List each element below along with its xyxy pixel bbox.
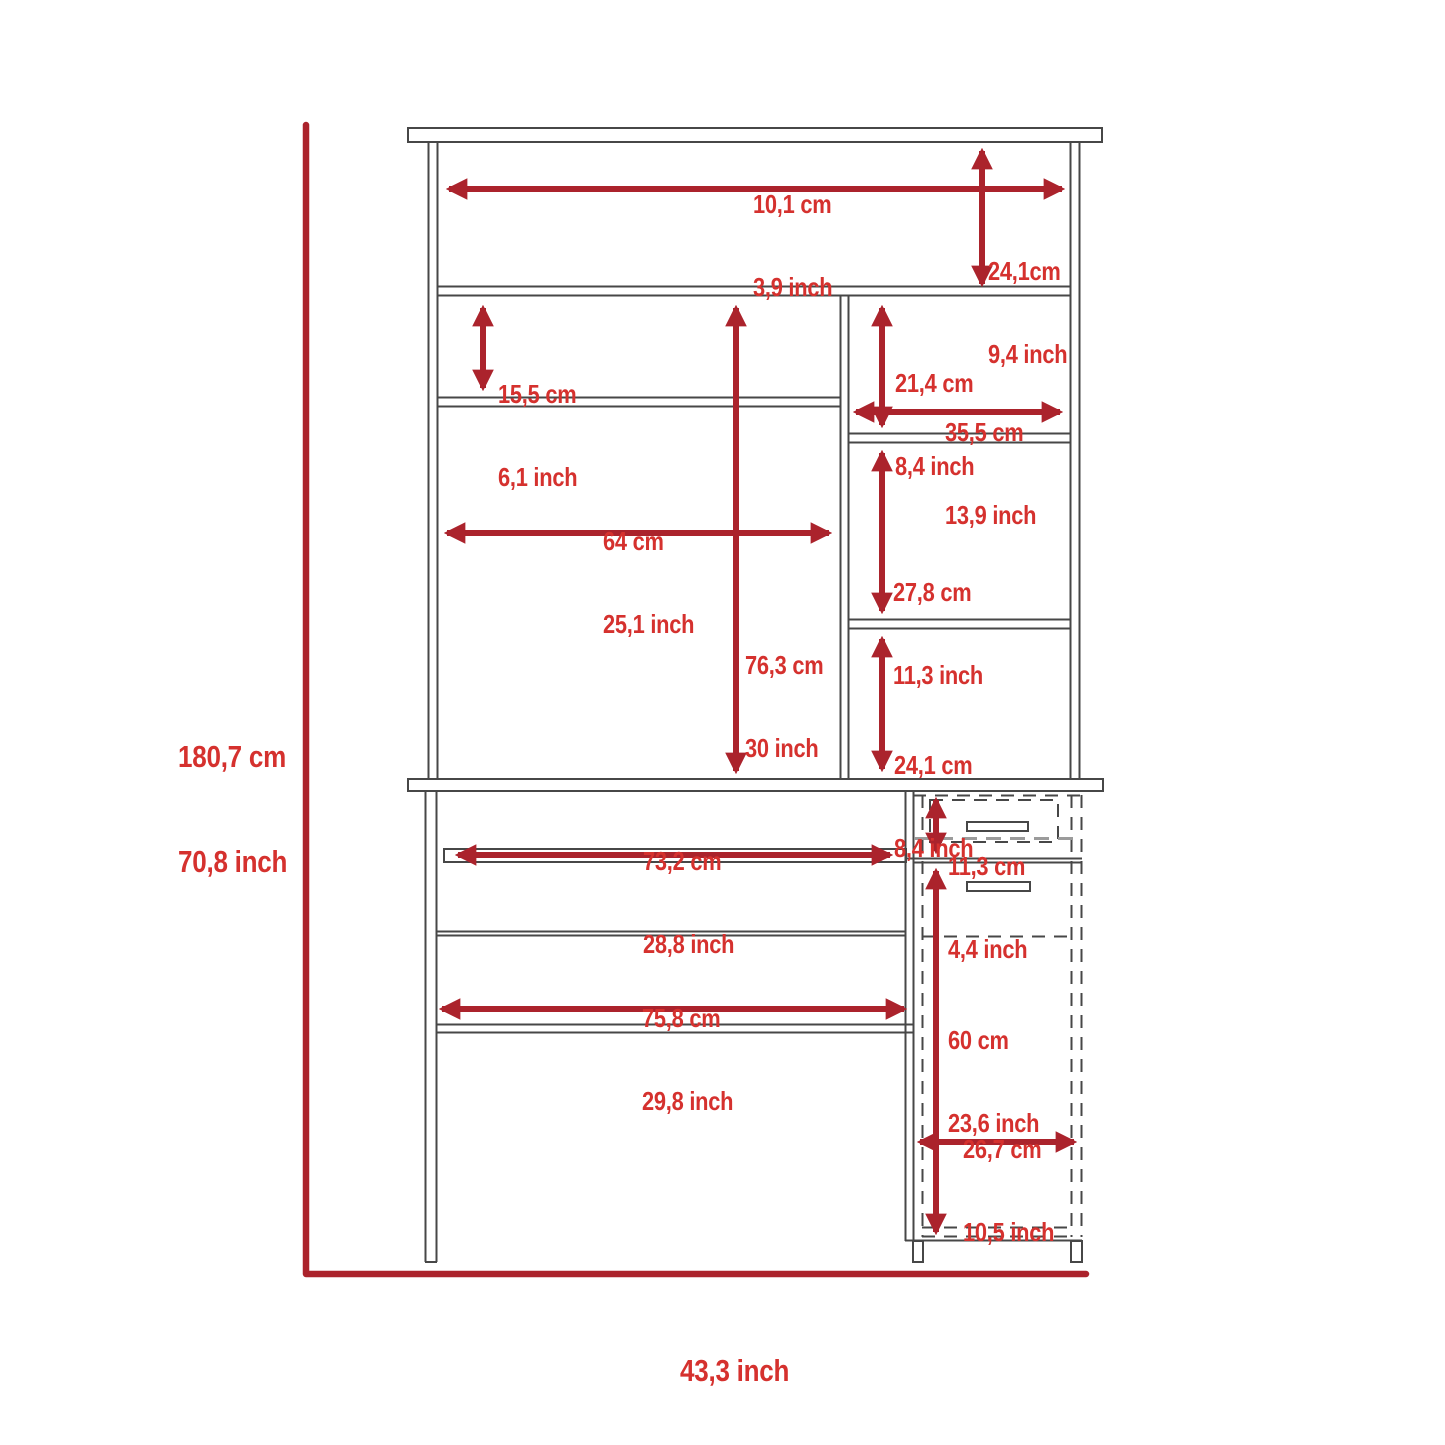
dim-value-cm: 10,1 cm — [753, 191, 832, 219]
dim-value-inch: 11,3 inch — [893, 662, 983, 690]
dim-value-inch: 25,1 inch — [603, 611, 694, 639]
dim-label-overall-height: 180,7 cm 70,8 inch — [178, 669, 287, 949]
dim-value-inch: 10,5 inch — [963, 1219, 1054, 1247]
dim-value-cm: 35,5 cm — [945, 419, 1036, 447]
dim-value-cm: 24,1cm — [988, 258, 1067, 286]
dim-value-inch: 6,1 inch — [498, 464, 577, 492]
dim-value-inch: 4,4 inch — [948, 936, 1027, 964]
dim-value-inch: 43,3 inch — [680, 1353, 789, 1388]
dim-value-inch: 29,8 inch — [642, 1088, 733, 1116]
dim-label-left-shelf-width: 64 cm 25,1 inch — [603, 473, 694, 693]
cabinet-leg — [1071, 1241, 1082, 1262]
dim-label-left-cubby-height: 15,5 cm 6,1 inch — [498, 326, 577, 546]
dim-label-cabinet-width: 26,7 cm 10,5 inch — [963, 1081, 1054, 1301]
dim-label-hutch-top-width: 10,1 cm 3,9 inch — [753, 136, 832, 356]
dim-value-cm: 75,8 cm — [642, 1005, 733, 1033]
dim-value-cm: 64 cm — [603, 528, 694, 556]
cabinet-leg — [913, 1241, 923, 1262]
dim-value-cm: 76,3 cm — [745, 652, 823, 680]
dim-value-cm: 24,1 cm — [894, 752, 973, 780]
dim-value-cm: 60 cm — [948, 1027, 1039, 1055]
dim-value-inch: 70,8 inch — [178, 844, 287, 879]
dim-value-cm: 11,3 cm — [948, 853, 1027, 881]
dim-label-desk-opening-width: 75,8 cm 29,8 inch — [642, 950, 733, 1170]
dim-label-overall-width: 43,3 inch 110 cm — [680, 1283, 789, 1445]
dim-value-inch: 3,9 inch — [753, 274, 832, 302]
dim-value-cm: 180,7 cm — [178, 739, 287, 774]
dimension-diagram: 10,1 cm 3,9 inch 24,1cm 9,4 inch 15,5 cm… — [0, 0, 1445, 1445]
dim-value-cm: 26,7 cm — [963, 1136, 1054, 1164]
dim-value-cm: 73,2 cm — [643, 848, 734, 876]
dim-value-cm: 27,8 cm — [893, 579, 983, 607]
dim-value-cm: 15,5 cm — [498, 381, 577, 409]
dim-label-hutch-opening-height: 76,3 cm 30 inch — [745, 597, 823, 817]
dim-value-inch: 30 inch — [745, 735, 823, 763]
